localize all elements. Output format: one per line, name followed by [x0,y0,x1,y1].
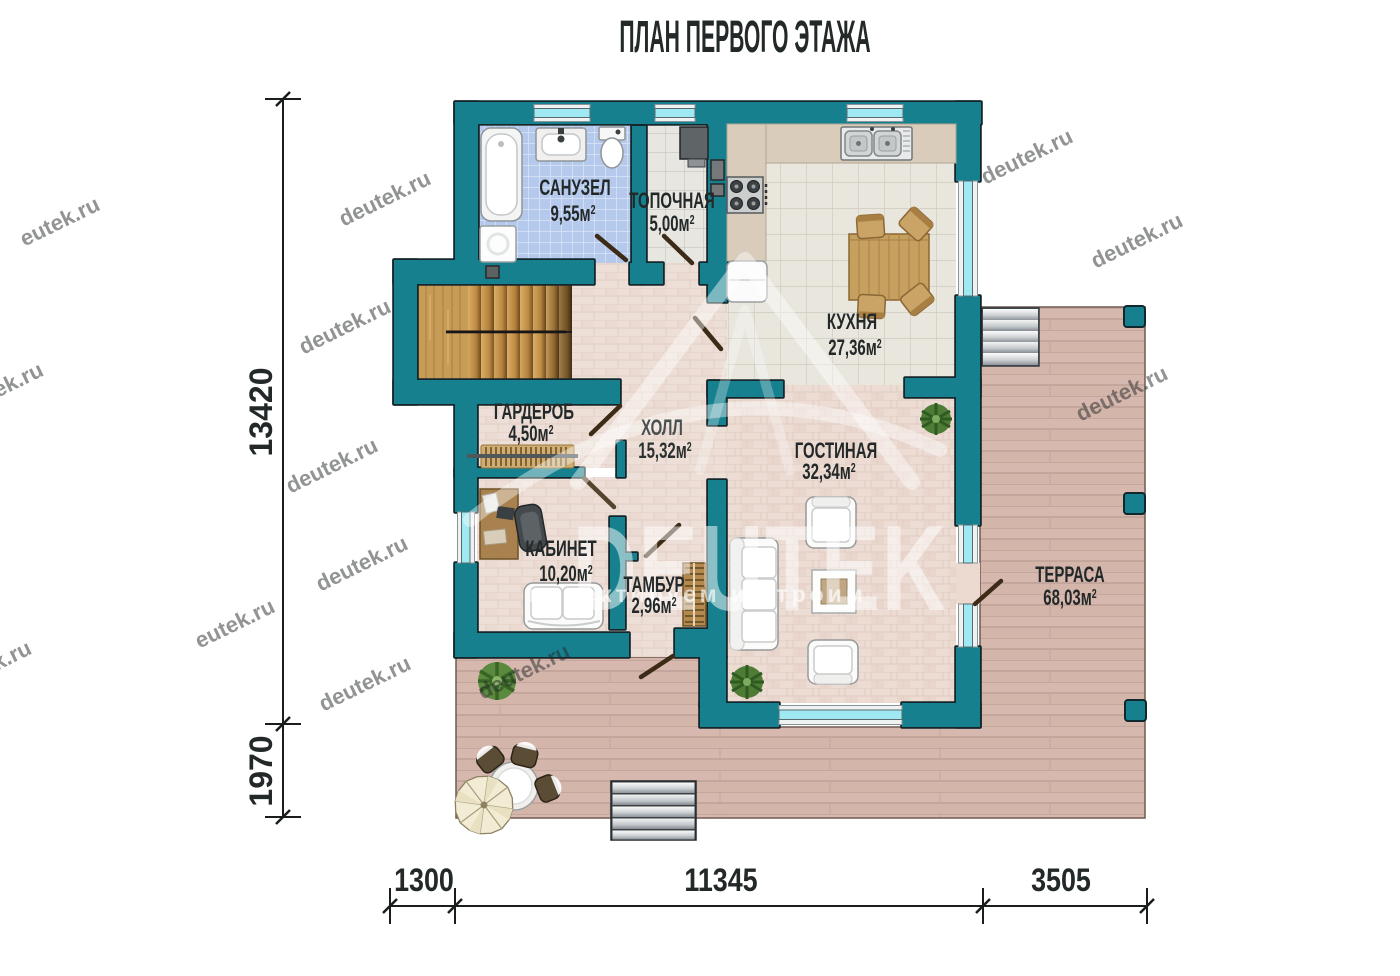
svg-text:10,20м2: 10,20м2 [539,561,592,586]
svg-text:ХОЛЛ: ХОЛЛ [641,415,683,440]
svg-text:9,55м2: 9,55м2 [550,201,595,226]
svg-text:САНУЗЕЛ: САНУЗЕЛ [539,175,610,200]
svg-text:ГАРДЕРОБ: ГАРДЕРОБ [494,399,574,424]
svg-text:11345: 11345 [684,863,757,899]
svg-text:КАБИНЕТ: КАБИНЕТ [525,536,597,561]
svg-text:5,00м2: 5,00м2 [649,211,694,236]
svg-text:1300: 1300 [394,863,454,899]
svg-text:4,50м2: 4,50м2 [508,421,553,446]
svg-text:1970: 1970 [243,735,279,806]
svg-text:27,36м2: 27,36м2 [828,335,881,360]
svg-text:ТЕРРАСА: ТЕРРАСА [1035,562,1105,587]
svg-text:15,32м2: 15,32м2 [638,438,691,463]
svg-text:13420: 13420 [243,368,279,457]
svg-text:32,34м2: 32,34м2 [802,459,855,484]
svg-text:КУХНЯ: КУХНЯ [827,309,877,334]
svg-text:3505: 3505 [1031,863,1091,899]
svg-text:DEUTEK: DEUTEK [573,499,948,636]
svg-text:68,03м2: 68,03м2 [1043,585,1096,610]
svg-text:ПЛАН ПЕРВОГО ЭТАЖА: ПЛАН ПЕРВОГО ЭТАЖА [619,12,870,62]
svg-text:ТОПОЧНАЯ: ТОПОЧНАЯ [629,188,715,213]
svg-text:2,96м2: 2,96м2 [631,593,676,618]
